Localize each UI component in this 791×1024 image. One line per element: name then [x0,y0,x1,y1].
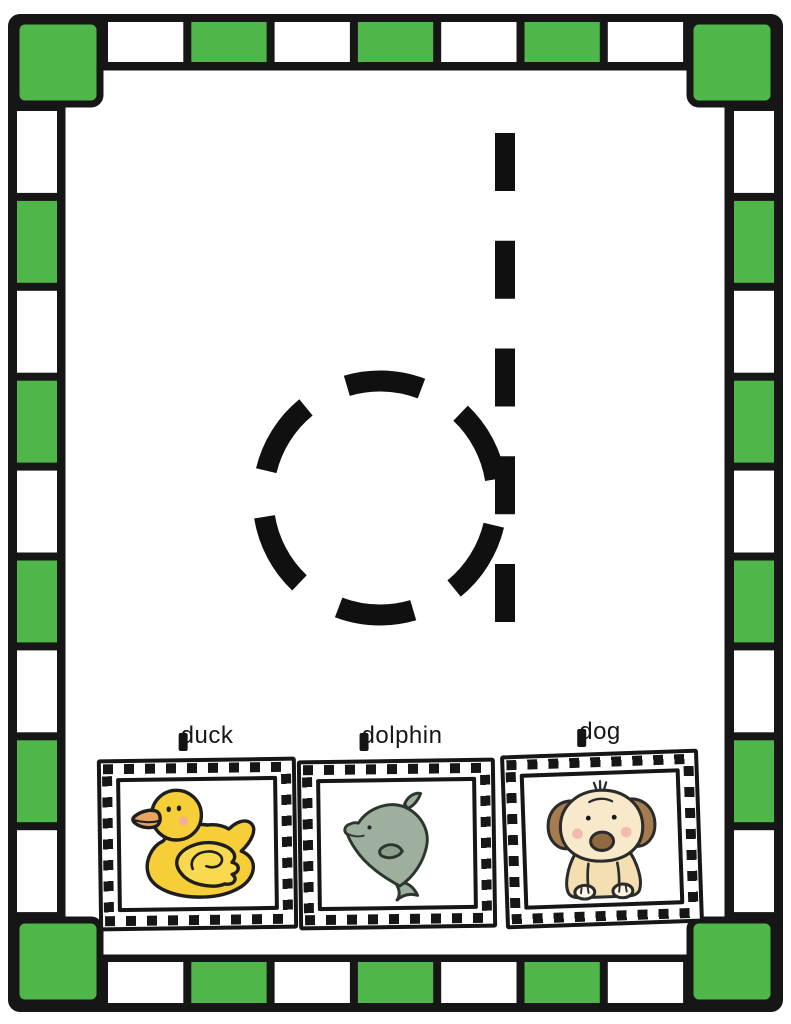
card-frame-checker [305,913,491,926]
card-image-area [116,776,279,912]
trace-letter-d [240,115,530,645]
card-frame-checker [105,914,292,927]
card-frame-checker [302,777,314,913]
picture-card-duck [97,757,298,932]
card-label-text: dog [579,718,621,745]
card-frame-checker [506,772,521,912]
dolphin-illustration [323,784,471,904]
card-image-area [316,777,478,911]
picture-card-dolphin [297,758,497,931]
card-frame-checker [281,774,293,912]
duck-illustration [123,783,272,905]
card-frame-checker [102,776,114,914]
card-frame-checker [103,762,290,775]
card-label-text: duck [181,722,234,749]
dog-illustration [527,775,677,902]
worksheet-page: duck dolphin dog [0,0,791,1024]
card-frame-checker [512,908,698,924]
card-image-area [520,768,685,910]
card-label-dolphin: dolphin [362,722,443,750]
card-label-text: dolphin [362,722,443,749]
picture-card-dog [500,749,704,930]
card-frame-checker [480,775,492,911]
letter-d-bowl [263,381,497,615]
card-frame-checker [684,766,699,906]
card-label-duck: duck [181,722,234,750]
card-frame-checker [303,763,489,776]
card-label-dog: dog [579,718,621,746]
